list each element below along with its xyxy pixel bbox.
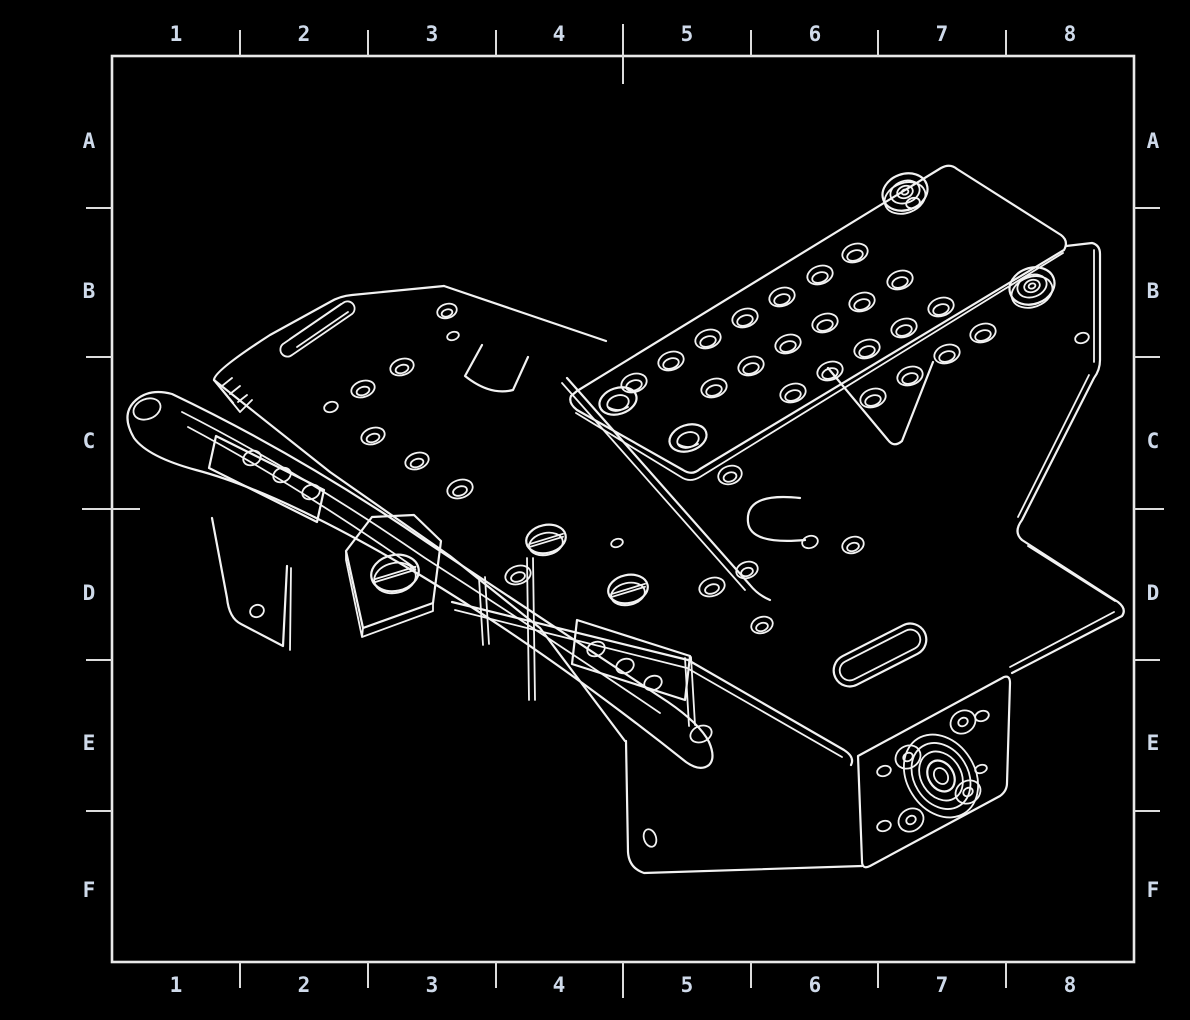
grid-label-row-left: F <box>83 878 96 902</box>
deck-notch-right <box>748 497 805 541</box>
deck-hole <box>403 450 431 473</box>
bearing-lobe <box>951 776 985 808</box>
bearing-ring <box>931 765 951 786</box>
small-hole <box>801 534 820 550</box>
plate-hole <box>810 310 840 335</box>
grid-label-col-bottom: 7 <box>936 973 949 997</box>
plate-hole <box>932 341 962 366</box>
plate-hole <box>968 320 998 345</box>
border-frame <box>112 56 1134 962</box>
deck-hole <box>697 574 727 599</box>
bearing-ring <box>889 721 993 832</box>
plate-hole <box>885 267 915 292</box>
plate-hole <box>847 289 877 314</box>
grommet-bore <box>901 188 909 195</box>
deck-hole <box>349 378 377 401</box>
grommet-bore <box>1028 282 1036 289</box>
arm-bracket <box>212 518 287 646</box>
plate-hole <box>895 363 925 388</box>
grid-label-col-top: 6 <box>809 22 822 46</box>
grid-label-row-right: C <box>1147 429 1160 453</box>
front-panel <box>479 558 862 873</box>
plate-hole <box>656 348 686 373</box>
grid-label-row-right: E <box>1147 731 1160 755</box>
wall-fold-edge <box>567 378 770 600</box>
grid-label-col-bottom: 8 <box>1064 973 1077 997</box>
grommet-ring <box>1014 271 1050 302</box>
bearing-lobe <box>946 706 980 738</box>
deck-hole <box>435 301 458 320</box>
arm-hole <box>688 722 714 745</box>
deck-hole <box>840 534 866 556</box>
small-hole <box>876 764 892 778</box>
deck-hole <box>388 356 416 379</box>
grid-label-col-top: 2 <box>298 22 311 46</box>
plate-hole <box>889 315 919 340</box>
drawing-sheet: 1122334455667788AABBCCDDEEFF <box>0 0 1190 1020</box>
bearing-lobe <box>894 804 928 836</box>
perforated-plate <box>570 166 1066 480</box>
grid-label-col-top: 7 <box>936 22 949 46</box>
arm-hole <box>300 482 322 502</box>
grid-label-col-top: 4 <box>553 22 566 46</box>
plate-hole <box>778 380 808 405</box>
grid-label-col-top: 8 <box>1064 22 1077 46</box>
plate-hole <box>693 326 723 351</box>
screw-slot <box>611 584 645 597</box>
arm-hole <box>614 656 636 676</box>
small-hole <box>446 330 460 341</box>
slot-outer <box>834 624 927 687</box>
grid-label-row-right: D <box>1147 581 1160 605</box>
deck-hole <box>445 476 475 501</box>
plate-hole <box>858 385 888 410</box>
plate-hole <box>840 240 870 265</box>
arm-hole <box>248 603 265 619</box>
deck-hole <box>503 562 533 587</box>
grid-label-col-top: 1 <box>170 22 183 46</box>
bearing-lobe-hole <box>962 786 975 798</box>
grid-label-col-bottom: 1 <box>170 973 183 997</box>
plate-hole <box>699 375 729 400</box>
deck-front-fold <box>452 602 852 765</box>
bearing-lobe-hole <box>957 716 970 728</box>
grid-label-col-bottom: 6 <box>809 973 822 997</box>
grid-label-col-top: 3 <box>426 22 439 46</box>
small-hole <box>323 400 339 414</box>
arm-hole <box>642 673 664 693</box>
plate-hole <box>852 336 882 361</box>
plate-hole <box>767 284 797 309</box>
counterbore-hole <box>666 420 710 456</box>
grid-label-row-left: B <box>83 279 96 303</box>
grid-label-col-bottom: 5 <box>681 973 694 997</box>
grid-label-row-left: A <box>83 129 96 153</box>
bumper-arm <box>127 392 712 768</box>
deck-notch-left <box>465 345 528 391</box>
grid-label-row-right: F <box>1147 878 1160 902</box>
arm-hole <box>130 394 163 423</box>
grid-label-row-left: E <box>83 731 96 755</box>
deck-slot-inner <box>290 304 348 347</box>
plate-hole <box>926 294 956 319</box>
deck-hole <box>716 463 744 488</box>
plate-hole <box>773 331 803 356</box>
deck-hole-inner <box>722 471 737 484</box>
plate-hole <box>730 305 760 330</box>
counterbore-hole <box>596 383 640 419</box>
bearing-lobe-hole <box>905 814 918 826</box>
grid-label-col-bottom: 4 <box>553 973 566 997</box>
grid-label-row-right: A <box>1147 129 1160 153</box>
grid-label-col-top: 5 <box>681 22 694 46</box>
top-deck <box>214 286 933 765</box>
small-hole <box>876 819 892 833</box>
grid-label-row-right: B <box>1147 279 1160 303</box>
small-hole <box>642 828 659 849</box>
grid-label-row-left: D <box>83 581 96 605</box>
deck-hole <box>749 614 775 636</box>
small-hole <box>610 537 624 548</box>
grid-label-col-bottom: 2 <box>298 973 311 997</box>
deck-hole <box>359 425 387 448</box>
plate-hole <box>736 353 766 378</box>
cad-drawing: 1122334455667788AABBCCDDEEFF <box>0 0 1190 1020</box>
grid-label-col-bottom: 3 <box>426 973 439 997</box>
screw-slot <box>529 534 563 547</box>
small-hole <box>1074 331 1090 345</box>
arm-hole <box>271 465 293 485</box>
plate-hole <box>805 262 835 287</box>
grommet-ring <box>1022 278 1041 295</box>
grid-label-row-left: C <box>83 429 96 453</box>
generated-detail: 1122334455667788AABBCCDDEEFF <box>82 22 1164 998</box>
